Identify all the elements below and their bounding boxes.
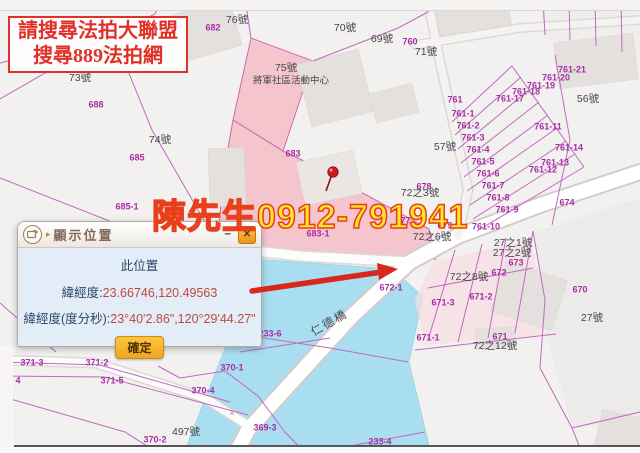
ad-notice-box: 請搜尋法拍大聯盟 搜尋889法拍網 bbox=[8, 16, 188, 73]
notice-line2: 搜尋889法拍網 bbox=[10, 44, 186, 69]
caret-icon: ▸ bbox=[46, 229, 51, 240]
location-dialog-icon bbox=[23, 225, 42, 244]
latlon-row: 緯經度:23.66746,120.49563 bbox=[18, 282, 261, 301]
dms-row: 緯經度(度分秒):23°40'2.86",120°29'44.27" bbox=[18, 308, 261, 327]
latlon-value: 23.66746,120.49563 bbox=[103, 286, 218, 300]
watermark-text: 陳先生0912-791941 bbox=[152, 189, 468, 238]
location-heading: 此位置 bbox=[18, 255, 261, 274]
dms-label: 緯經度(度分秒): bbox=[23, 312, 110, 326]
notice-line1: 請搜尋法拍大聯盟 bbox=[10, 19, 186, 44]
dms-value: 23°40'2.86",120°29'44.27" bbox=[110, 312, 255, 326]
latlon-label: 緯經度: bbox=[62, 286, 103, 300]
show-location-dialog: ▸ 顯示位置 – ✕ 此位置 緯經度:23.66746,120.49563 緯經… bbox=[17, 221, 262, 347]
dialog-body: 此位置 緯經度:23.66746,120.49563 緯經度(度分秒):23°4… bbox=[18, 248, 261, 359]
confirm-button[interactable]: 確定 bbox=[115, 336, 163, 359]
map-viewport: 682760688683685685-1683-1672-1761761-176… bbox=[0, 0, 640, 453]
